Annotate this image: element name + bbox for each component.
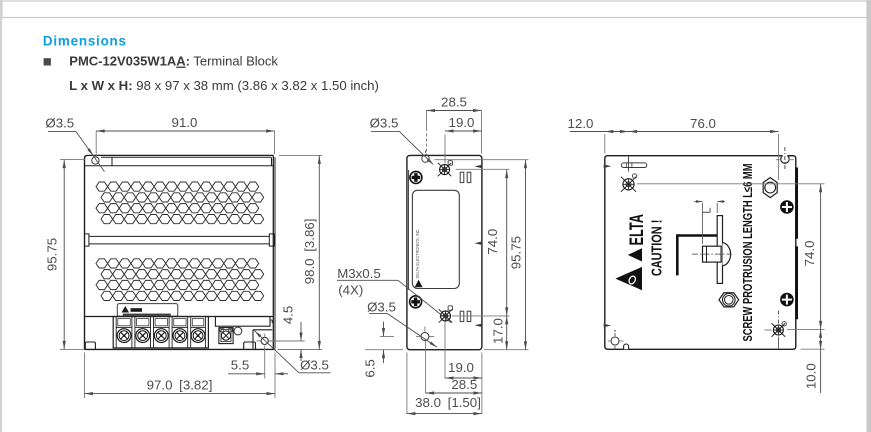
svg-text:76.0: 76.0 bbox=[690, 116, 716, 131]
svg-text:DELTA ELECTRONICS, INC.: DELTA ELECTRONICS, INC. bbox=[415, 229, 420, 279]
svg-text:95.75: 95.75 bbox=[45, 238, 60, 271]
svg-text:74.0: 74.0 bbox=[802, 240, 817, 266]
svg-text:Dimensions: Dimensions bbox=[43, 34, 127, 49]
svg-text:95.75: 95.75 bbox=[509, 236, 524, 269]
svg-text:28.5: 28.5 bbox=[441, 95, 467, 110]
svg-text:38.0 [1.50]: 38.0 [1.50] bbox=[415, 395, 481, 410]
svg-text:L x W x H: 98 x 97 x 38 mm (3.: L x W x H: 98 x 97 x 38 mm (3.86 x 3.82 … bbox=[69, 78, 379, 93]
svg-text:74.0: 74.0 bbox=[485, 229, 500, 255]
svg-text:Ø3.5: Ø3.5 bbox=[370, 116, 399, 131]
svg-text:PMC-12V035W1AA: Terminal Block: PMC-12V035W1AA: Terminal Block bbox=[69, 54, 278, 69]
svg-text:Ø3.5: Ø3.5 bbox=[300, 357, 329, 372]
svg-text:19.0: 19.0 bbox=[449, 115, 475, 130]
svg-text:Ø3.5: Ø3.5 bbox=[45, 116, 74, 131]
svg-text:17.0: 17.0 bbox=[491, 318, 506, 344]
svg-text:12.0: 12.0 bbox=[568, 116, 594, 131]
svg-text:4.5: 4.5 bbox=[280, 306, 295, 325]
svg-text:SCREW PROTRUSION LENGTH L≤6 M: SCREW PROTRUSION LENGTH L≤6 MM bbox=[741, 164, 755, 342]
svg-text:91.0: 91.0 bbox=[172, 115, 198, 130]
svg-text:Ø3.5: Ø3.5 bbox=[367, 299, 396, 314]
svg-text:19.0: 19.0 bbox=[448, 360, 474, 375]
svg-text:ELTA: ELTA bbox=[627, 214, 648, 246]
svg-text:M3x0.5: M3x0.5 bbox=[337, 266, 381, 281]
svg-text:28.5: 28.5 bbox=[451, 377, 477, 392]
svg-text:(4X): (4X) bbox=[338, 283, 363, 298]
svg-text:6.5: 6.5 bbox=[362, 359, 377, 378]
svg-text:L: L bbox=[702, 207, 714, 214]
svg-text:97.0 [3.82]: 97.0 [3.82] bbox=[147, 377, 213, 392]
svg-text:5.5: 5.5 bbox=[231, 358, 250, 373]
svg-text:10.0: 10.0 bbox=[804, 363, 819, 389]
svg-text:98.0 [3.86]: 98.0 [3.86] bbox=[302, 219, 317, 285]
svg-text:CAUTION !: CAUTION ! bbox=[650, 220, 666, 277]
